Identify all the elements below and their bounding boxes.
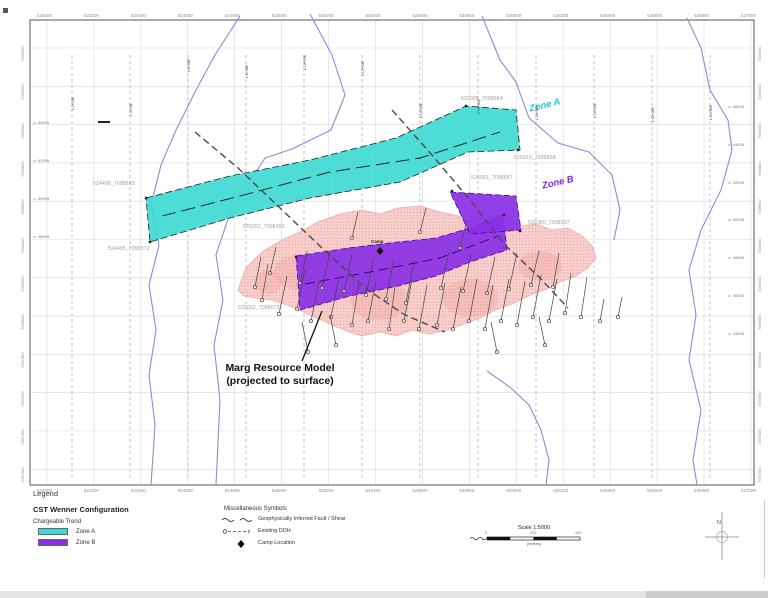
map-canvas (0, 0, 768, 598)
scale-bar (470, 537, 580, 540)
legend-symbols (222, 519, 252, 549)
north-arrow-icon (705, 512, 739, 560)
map-page: Zone A Zone B Camp Marg Resource Model (… (0, 0, 768, 598)
